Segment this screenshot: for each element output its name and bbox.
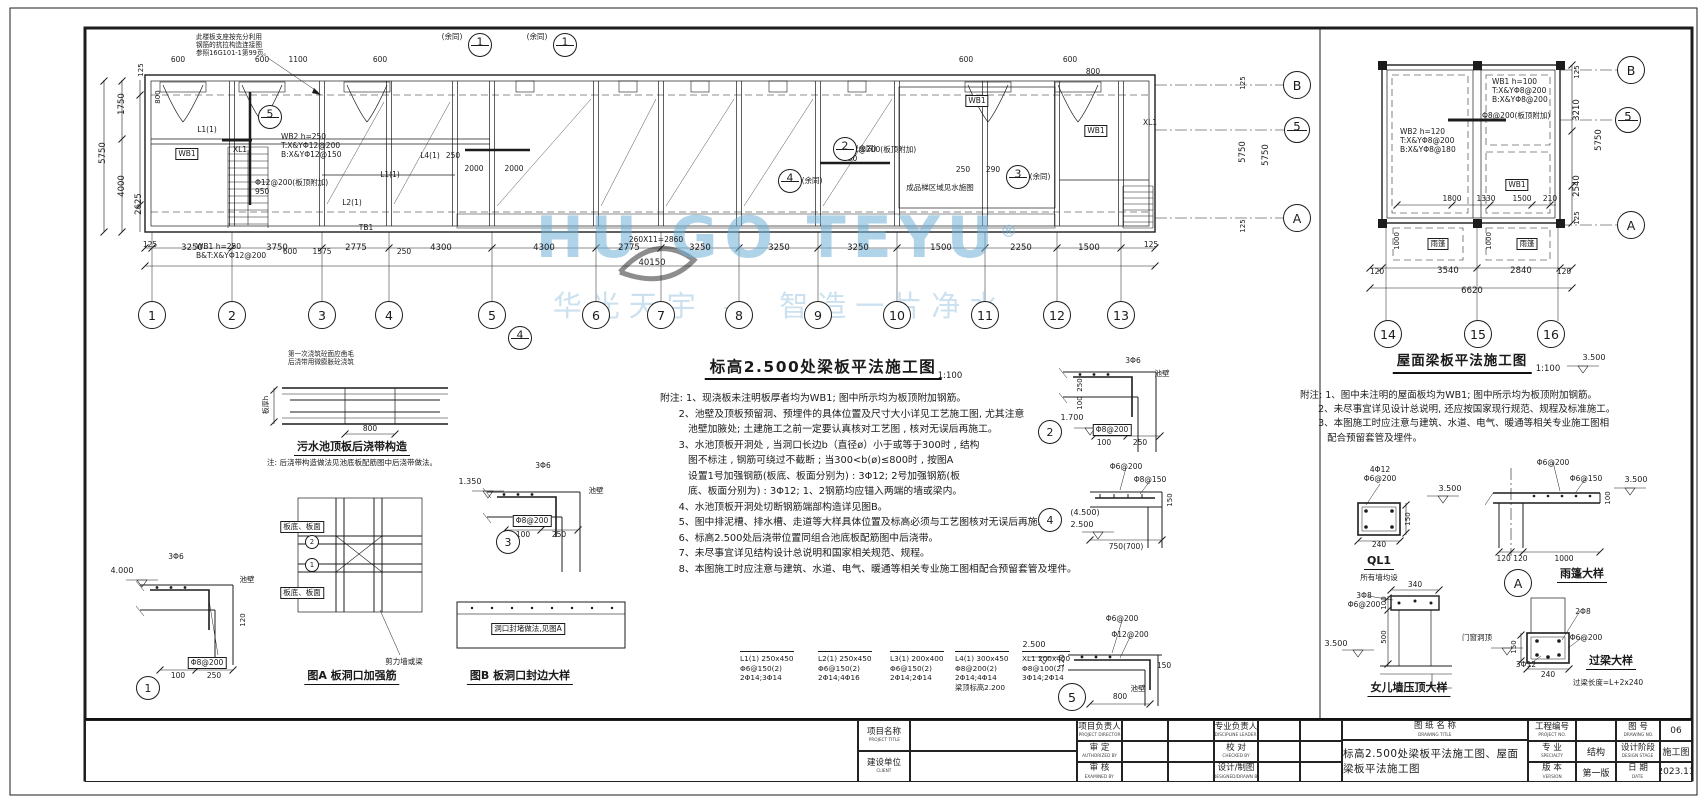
title-block: 项目名称PROJECT TITLE 建设单位CLIENT 项目负责人PROJEC… — [85, 718, 1692, 780]
annotation: 雨篷 — [1517, 238, 1538, 250]
project-no-label: 工程编号PROJECT NO. — [1528, 720, 1576, 741]
titleblock-empty-cell — [1168, 762, 1214, 782]
annotation: 图B 板洞口封边大样 — [467, 670, 573, 685]
annotation: 210 — [1543, 195, 1557, 204]
annotation: 1.700 — [1061, 413, 1084, 422]
note-line: 8、本图施工时应注意与建筑、水道、电气、暖通等相关专业施工图相配合预留套管及埋件… — [660, 562, 1077, 578]
grid-bubble: 3 — [308, 301, 336, 329]
note-line: 2、池壁及顶板预留洞、预埋件的具体位置及尺寸大小详见工艺施工图, 尤其注意 — [660, 407, 1077, 423]
annotation: 1:100 — [1536, 364, 1561, 374]
annotation: 1750 — [117, 93, 127, 115]
annotation: Φ6@200 — [1106, 615, 1139, 624]
annotation: 150 — [1166, 493, 1174, 506]
annotation: 240 — [1541, 671, 1555, 680]
approved-label: 审 定AUTHORIZED BY — [1077, 741, 1122, 762]
grid-bubble: 7 — [647, 301, 675, 329]
annotation: 3Φ6 — [1125, 357, 1140, 366]
annotation: 1.350 — [459, 477, 482, 486]
annotation: 过梁长度=L+2x240 — [1573, 679, 1643, 688]
annotation: 1000 — [1393, 232, 1401, 250]
annotation: 板厚h — [262, 396, 270, 414]
grid-bubble: A — [1504, 569, 1532, 597]
annotation: 1330 — [1476, 195, 1495, 204]
grid-bubble: 1 — [468, 33, 492, 57]
grid-bubble: 4 — [1038, 508, 1062, 532]
grid-bubble: 3 — [1006, 165, 1030, 189]
beam-schedule-entry: L1(1) 250x450 Φ6@150(2) 2Φ14;3Φ14 — [740, 651, 794, 683]
annotation: 3Φ6 — [168, 553, 183, 562]
annotation: (余同) — [442, 33, 463, 42]
annotation: WB2 h=120 T:X&YΦ8@200 B:X&YΦ8@180 — [1400, 128, 1456, 155]
project-title-value — [910, 720, 1077, 751]
annotation: Φ12@200 — [1111, 631, 1148, 640]
annotation: 3.500 — [1583, 353, 1606, 362]
drawing-sheet: HU GO TEYU® 华光天宇 — 智造一片净水 附注: 1、现浇板未注明板厚… — [0, 0, 1707, 804]
annotation: 2.500 — [1023, 640, 1046, 649]
annotation: 125 — [1239, 76, 1247, 89]
annotation: 2250 — [1010, 243, 1032, 253]
note-line: 4、水池顶板开洞处切断钢筋端部构造详见图B。 — [660, 500, 1077, 516]
annotation: 3250 — [181, 243, 203, 253]
annotation: 250 — [1133, 439, 1147, 448]
discipline-leader-label: 专业负责人DISCIPLINE LEADER — [1214, 720, 1258, 741]
annotation: Φ12@200(板顶附加) 950 — [255, 179, 328, 197]
annotation: Φ8@200 — [513, 515, 552, 527]
specialty-label: 专 业SPECIALTY — [1528, 741, 1576, 762]
titleblock-empty-cell — [1258, 741, 1300, 762]
annotation: 100 — [171, 672, 185, 681]
beam-schedule-entry: L4(1) 300x450 Φ8@200(2) 2Φ14;4Φ14 梁顶标高2.… — [955, 651, 1009, 692]
annotation: 800 — [1113, 693, 1127, 702]
annotation: 图A 板洞口加强筋 — [304, 670, 399, 685]
annotation: 过梁大样 — [1586, 655, 1636, 670]
annotation: 150 — [1157, 662, 1171, 671]
annotation: 100 — [1076, 396, 1084, 409]
annotation: WB2 h=250 T:X&YΦ12@200 B:X&YΦ12@150 — [281, 133, 342, 160]
titleblock-empty-cell — [1258, 720, 1300, 741]
annotation: 3.500 — [1439, 484, 1462, 493]
annotation: 240 — [1372, 541, 1386, 550]
annotation: TB1 — [359, 224, 374, 233]
annotation: 600 — [255, 56, 269, 65]
annotation: Φ8@200(板顶附加) — [1482, 112, 1550, 121]
annotation: 3250 — [689, 243, 711, 253]
annotation: WB1 — [1505, 179, 1528, 191]
annotation: 2625 — [134, 193, 144, 215]
specialty-value: 结构 — [1576, 741, 1616, 762]
annotation: 第一次浇筑砼面应凿毛 后浇带用微膨胀砼浇筑 — [288, 351, 354, 367]
note-line: 3、水池顶板开洞处 , 当洞口长边b（直径ø）小于或等于300时 , 结构 — [660, 438, 1077, 454]
annotation: 250 — [446, 152, 460, 161]
checked-label: 校 对CHECKED BY — [1214, 741, 1258, 762]
note-line: 底、板面分别为) : 3Φ12; 1、2钢筋均应锚入两端的墙或梁内。 — [660, 484, 1077, 500]
annotation: 1500 — [1078, 243, 1100, 253]
annotation: WB1 — [965, 95, 988, 107]
annotation: 120 120 — [1496, 555, 1527, 564]
annotation: 750(700) — [1109, 543, 1143, 552]
note-line: 池壁加腋处; 土建施工之前一定要认真核对工艺图 , 核对无误后再施工。 — [660, 422, 1077, 438]
annotation: L1(1) — [197, 126, 217, 135]
annotation: 800 — [363, 425, 377, 434]
annotation: 板底、板面 — [280, 587, 324, 599]
drawing-title-value: 标高2.500处梁板平法施工图、屋面梁板平法施工图 — [1342, 740, 1528, 782]
examined-label: 审 核EXAMINED BY — [1077, 762, 1122, 782]
grid-bubble: 14 — [1374, 320, 1402, 348]
annotation: 3540 — [1437, 266, 1459, 276]
main-plan-notes: 附注: 1、现浇板未注明板厚者均为WB1; 图中所示均为板顶附加钢筋。 2、池壁… — [660, 391, 1077, 577]
grid-bubble: 1 — [136, 676, 160, 700]
grid-bubble: 12 — [1043, 301, 1071, 329]
annotation: Φ6@200 — [1570, 634, 1603, 643]
annotation: 120 — [239, 613, 247, 626]
client-value — [910, 751, 1077, 782]
annotation: L1(1) — [380, 171, 400, 180]
grid-bubble: 1 — [553, 33, 577, 57]
annotation: 125 — [1573, 65, 1581, 78]
annotation: 5750 — [1594, 129, 1604, 151]
annotation: 600 — [171, 56, 185, 65]
grid-bubble: 11 — [971, 301, 999, 329]
designed-label: 设计/制图DESIGNED/DRAWN BY — [1214, 762, 1258, 782]
version-value: 第一版 — [1576, 762, 1616, 782]
annotation: 池壁 — [1155, 370, 1170, 379]
annotation: L4(1) — [420, 152, 440, 161]
grid-bubble: 5 — [1058, 683, 1086, 711]
annotation: 2000 — [464, 165, 483, 174]
drawing-no-label: 图 号DRAWING NO. — [1616, 720, 1660, 741]
titleblock-empty-cell — [1122, 741, 1168, 762]
annotation: 池壁 — [240, 576, 255, 585]
titleblock-empty-cell — [1258, 762, 1300, 782]
titleblock-empty-cell — [1122, 762, 1168, 782]
annotation: 250 — [1076, 378, 1084, 391]
annotation: 125 — [1573, 211, 1581, 224]
client-label: 建设单位CLIENT — [858, 751, 910, 782]
drawing-no-value: 06 — [1660, 720, 1692, 741]
annotation: 100 — [1097, 439, 1111, 448]
annotation: 500 — [1380, 630, 1388, 643]
titleblock-empty-cell — [1300, 741, 1342, 762]
annotation: 2Φ8 — [1575, 608, 1590, 617]
drawing-title-label: 图 纸 名 称DRAWING TITLE — [1342, 720, 1528, 740]
date-label: 日 期DATE — [1616, 762, 1660, 782]
annotation: 5750 — [1238, 141, 1248, 163]
grid-bubble: 8 — [725, 301, 753, 329]
annotation: 40150 — [638, 258, 665, 268]
titleblock-empty-cell — [1122, 720, 1168, 741]
titleblock-logo-cell — [85, 720, 858, 782]
annotation: 600 — [373, 56, 387, 65]
annotation: L2(1) — [342, 199, 362, 208]
annotation: 120 — [1370, 268, 1384, 277]
annotation: 女儿墙压顶大样 — [1368, 682, 1451, 697]
annotation: 污水池顶板后浇带构造 — [294, 441, 410, 456]
grid-bubble: B — [1283, 71, 1311, 99]
annotation: 1:100 — [938, 371, 963, 381]
annotation: QL1 — [1364, 555, 1394, 570]
annotation: 门窗洞顶 — [1462, 634, 1492, 643]
annotation: 120 — [1557, 268, 1571, 277]
grid-bubble: 4 — [375, 301, 403, 329]
annotation: (余同) — [1030, 173, 1051, 182]
annotation: 1800 — [1442, 195, 1461, 204]
annotation: (余同) — [802, 177, 823, 186]
annotation: 2775 — [618, 243, 640, 253]
grid-bubble: 5 — [478, 301, 506, 329]
annotation: XL1 — [233, 146, 247, 155]
annotation: Φ8@200 — [1093, 424, 1132, 436]
annotation: 池壁 — [589, 487, 604, 496]
roof-plan-notes: 附注: 1、图中未注明的屋面板均为WB1; 图中所示均为板顶附加钢筋。 2、未尽… — [1300, 389, 1615, 446]
annotation: 1500 — [1512, 195, 1531, 204]
grid-bubble: 2 — [218, 301, 246, 329]
grid-bubble: 5 — [258, 105, 282, 129]
annotation: (4.500) — [1070, 508, 1099, 517]
beam-schedule-entry: L2(1) 250x450 Φ6@150(2) 2Φ14;4Φ16 — [818, 651, 872, 683]
grid-bubble: 2 — [1038, 420, 1062, 444]
annotation: 3Φ6 — [535, 462, 550, 471]
annotation: 600 — [959, 56, 973, 65]
note-line: 7、未尽事宜详见结构设计总说明和国家相关规范、规程。 — [660, 546, 1077, 562]
note-line: 6、标高2.500处后浇带位置同组合池底板配筋图中后浇带。 — [660, 531, 1077, 547]
annotation: WB1 h=250 B&T:X&YΦ12@200 — [196, 243, 266, 261]
annotation: 3Φ8 Φ6@200 — [1348, 592, 1381, 610]
note-line: 附注: 1、现浇板未注明板厚者均为WB1; 图中所示均为板顶附加钢筋。 — [660, 391, 1077, 407]
note-line: 配合预留套管及埋件。 — [1300, 432, 1615, 446]
annotation: (余同) — [856, 145, 877, 154]
grid-bubble: 10 — [883, 301, 911, 329]
annotation: 800 — [1086, 68, 1100, 77]
stage-value: 施工图 — [1660, 741, 1692, 762]
annotation: 洞口封堵做法,见图A — [491, 623, 565, 635]
annotation: 125 — [1144, 241, 1158, 250]
annotation: 340 — [1408, 581, 1422, 590]
annotation: 4300 — [533, 243, 555, 253]
annotation: 6620 — [1461, 286, 1483, 296]
annotation: 2.500 — [1071, 520, 1094, 529]
annotation: Φ6@150 — [1570, 475, 1603, 484]
annotation: 2540 — [1572, 175, 1582, 197]
annotation: Φ8@200 — [188, 657, 227, 669]
pm-label: 项目负责人PROJECT DIRECTOR — [1077, 720, 1122, 741]
annotation: 池壁 — [1131, 685, 1146, 694]
annotation: XL1 — [1143, 119, 1157, 128]
annotation: WB1 — [175, 148, 198, 160]
grid-bubble: A — [1617, 211, 1645, 239]
annotation: 250 — [207, 672, 221, 681]
annotation: 3.500 — [1625, 475, 1648, 484]
annotation: 3210 — [1572, 99, 1582, 121]
annotation: 2840 — [1510, 266, 1532, 276]
grid-bubble: 5 — [1284, 117, 1310, 143]
grid-bubble: 1 — [138, 301, 166, 329]
grid-bubble: 6 — [582, 301, 610, 329]
annotation: 1100 — [288, 56, 307, 65]
annotation: 250 — [397, 248, 411, 257]
grid-bubble: A — [1283, 204, 1311, 232]
annotation: 雨篷大样 — [1557, 568, 1607, 583]
annotation: 800 — [154, 90, 162, 103]
grid-bubble: 2 — [833, 137, 857, 161]
annotation: 此楼板支座按充分利用 钢筋的抗拉构造连接图 参照16G101-1第99页。 — [196, 34, 270, 57]
annotation: 290 — [986, 166, 1000, 175]
date-value: 2023.11 — [1660, 762, 1692, 782]
version-label: 版 本VERSION — [1528, 762, 1576, 782]
annotation: 2000 — [504, 165, 523, 174]
annotation: 100 — [1380, 596, 1388, 609]
beam-schedule-entry: L3(1) 200x400 Φ6@150(2) 2Φ14;2Φ14 — [890, 651, 944, 683]
grid-bubble: 5 — [1615, 107, 1641, 133]
note-line: 设置1号加强钢筋(板底、板面分别为) : 3Φ12; 2号加强钢筋(板 — [660, 469, 1077, 485]
annotation: 100 — [1604, 491, 1612, 504]
annotation: 标高2.500处梁板平法施工图 — [705, 358, 942, 380]
annotation: 1575 — [312, 248, 331, 257]
annotation: 1000 — [1485, 232, 1493, 250]
titleblock-empty-cell — [1168, 741, 1214, 762]
annotation: 3750 — [266, 243, 288, 253]
stage-label: 设计阶段DESIGN STAGE — [1616, 741, 1660, 762]
annotation: 所有墙均设 — [1360, 574, 1398, 583]
annotation: 雨篷 — [1428, 238, 1449, 250]
grid-bubble: 15 — [1464, 320, 1492, 348]
note-line: 3、本图施工时应注意与建筑、水道、电气、暖通等相关专业施工图相 — [1300, 417, 1615, 431]
grid-bubble: B — [1617, 56, 1645, 84]
annotation: 4Φ12 Φ6@200 — [1364, 466, 1397, 484]
grid-bubble: 1 — [305, 558, 319, 572]
annotation: 150 — [1510, 640, 1518, 653]
annotation: 3Φ12 — [1516, 661, 1536, 670]
annotation: 250 — [956, 166, 970, 175]
annotation: 3250 — [847, 243, 869, 253]
annotation: 1000 — [1554, 555, 1573, 564]
annotation: 3.500 — [1325, 639, 1348, 648]
annotation: 4000 — [117, 175, 127, 197]
grid-bubble: 9 — [804, 301, 832, 329]
annotation: 注: 后浇带构造做法见池底板配筋图中后浇带做法。 — [267, 459, 437, 468]
annotation: WB1 — [1084, 125, 1107, 137]
annotation: 4.000 — [111, 566, 134, 575]
annotation: 1500 — [930, 243, 952, 253]
annotation: 5750 — [98, 142, 108, 164]
annotation: 125 — [137, 63, 145, 76]
note-line: 5、图中排泥槽、排水槽、走道等大样具体位置及标高必须与工艺图核对无误后再施工。 — [660, 515, 1077, 531]
project-title-label: 项目名称PROJECT TITLE — [858, 720, 910, 751]
note-line: 2、未尽事宜详见设计总说明, 还应按国家现行规范、规程及标准施工。 — [1300, 403, 1615, 417]
annotation: 125 — [143, 241, 157, 250]
titleblock-empty-cell — [1300, 720, 1342, 741]
annotation: WB1 h=100 T:X&YΦ8@200 B:X&YΦ8@200 — [1492, 78, 1548, 105]
annotation: 600 — [1063, 56, 1077, 65]
annotation: 板底、板面 — [280, 521, 324, 533]
annotation: 5750 — [1261, 144, 1271, 166]
annotation: 125 — [1239, 219, 1247, 232]
grid-bubble: 3 — [496, 530, 520, 554]
grid-bubble: 4 — [508, 326, 532, 350]
titleblock-empty-cell — [1168, 720, 1214, 741]
beam-schedule-entry: XL1 200x400 Φ8@100(2) 3Φ14;2Φ14 — [1022, 651, 1070, 683]
annotation: Φ6@200 — [1110, 463, 1143, 472]
grid-bubble: 16 — [1537, 320, 1565, 348]
note-line: 附注: 1、图中未注明的屋面板均为WB1; 图中所示均为板顶附加钢筋。 — [1300, 389, 1615, 403]
grid-bubble: 13 — [1107, 301, 1135, 329]
annotation: 150 — [1404, 512, 1412, 525]
annotation: Φ6@200 — [1537, 459, 1570, 468]
titleblock-empty-cell — [1300, 762, 1342, 782]
annotation: 250 — [552, 531, 566, 540]
grid-bubble: 4 — [778, 169, 802, 193]
annotation: 成品梯区域见水施图 — [906, 184, 974, 193]
annotation: 剪力墙或梁 — [385, 658, 423, 667]
note-line: 图不标注 , 钢筋可绕过不截断 ; 当300<b(ø)≤800时 , 按图A — [660, 453, 1077, 469]
annotation: (余同) — [527, 33, 548, 42]
annotation: Φ8@150 — [1134, 476, 1167, 485]
annotation: 3250 — [768, 243, 790, 253]
project-no-value — [1576, 720, 1616, 741]
annotation: 2775 — [345, 243, 367, 253]
annotation: 屋面梁板平法施工图 — [1393, 354, 1532, 374]
annotation: 4300 — [430, 243, 452, 253]
grid-bubble: 2 — [305, 535, 319, 549]
